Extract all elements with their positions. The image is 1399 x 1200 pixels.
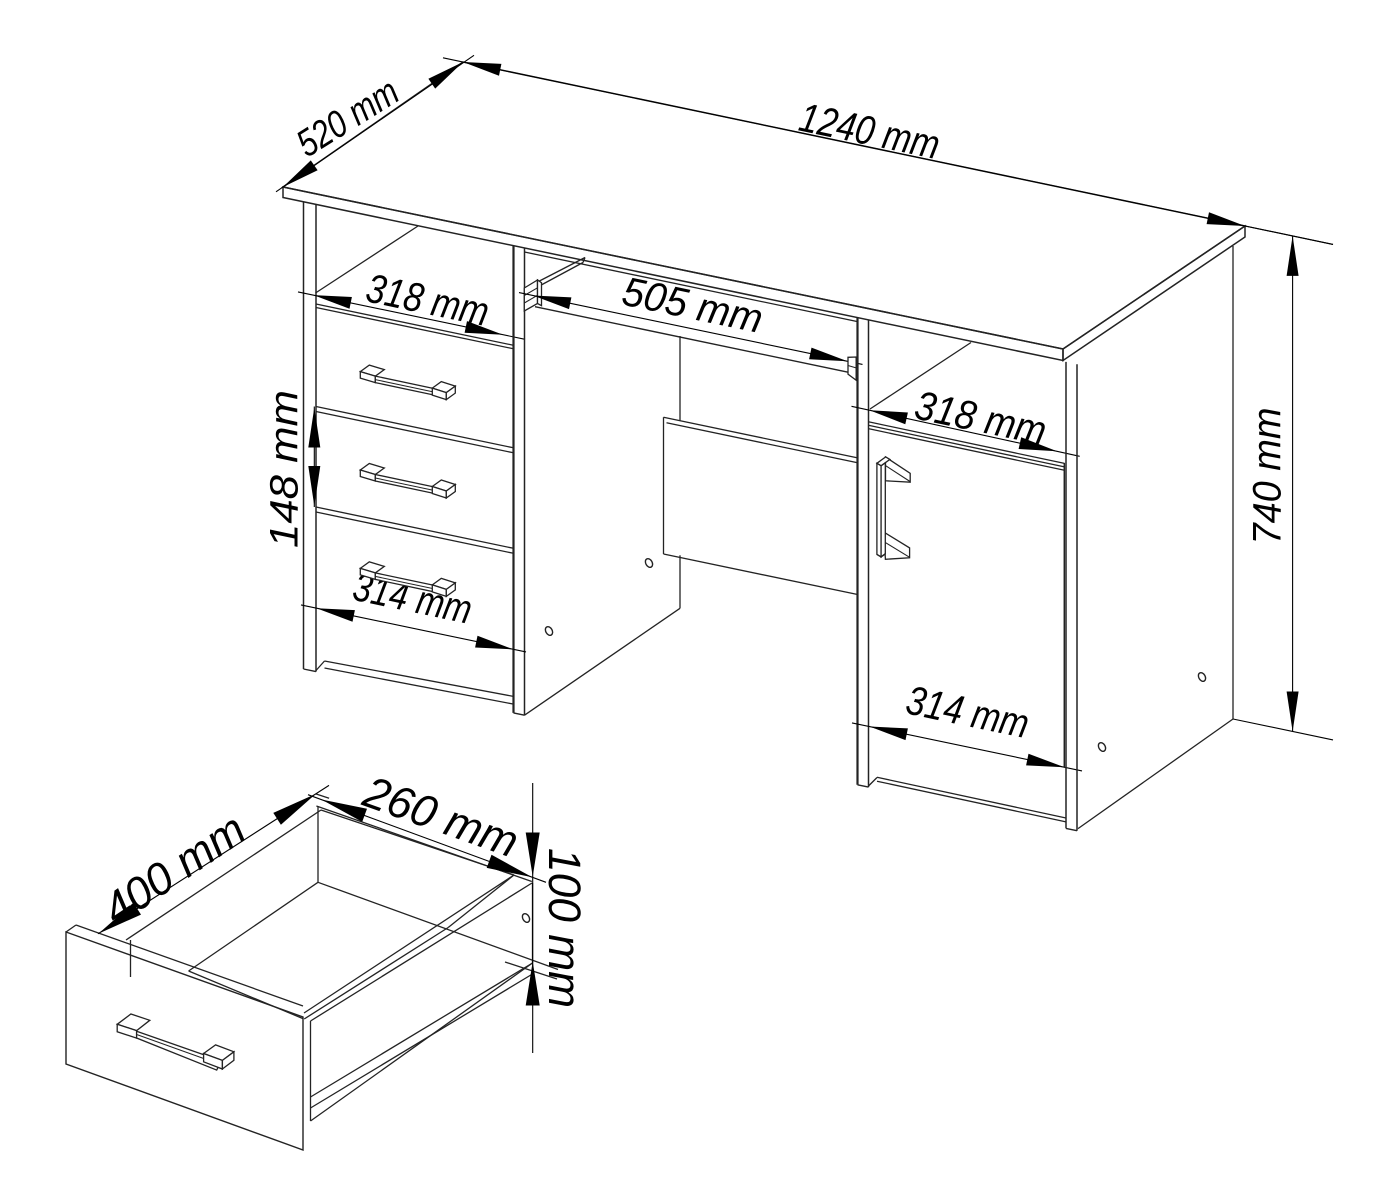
svg-text:100 mm: 100 mm: [539, 848, 590, 1008]
svg-text:740 mm: 740 mm: [1246, 408, 1290, 545]
svg-text:148 mm: 148 mm: [263, 390, 307, 548]
